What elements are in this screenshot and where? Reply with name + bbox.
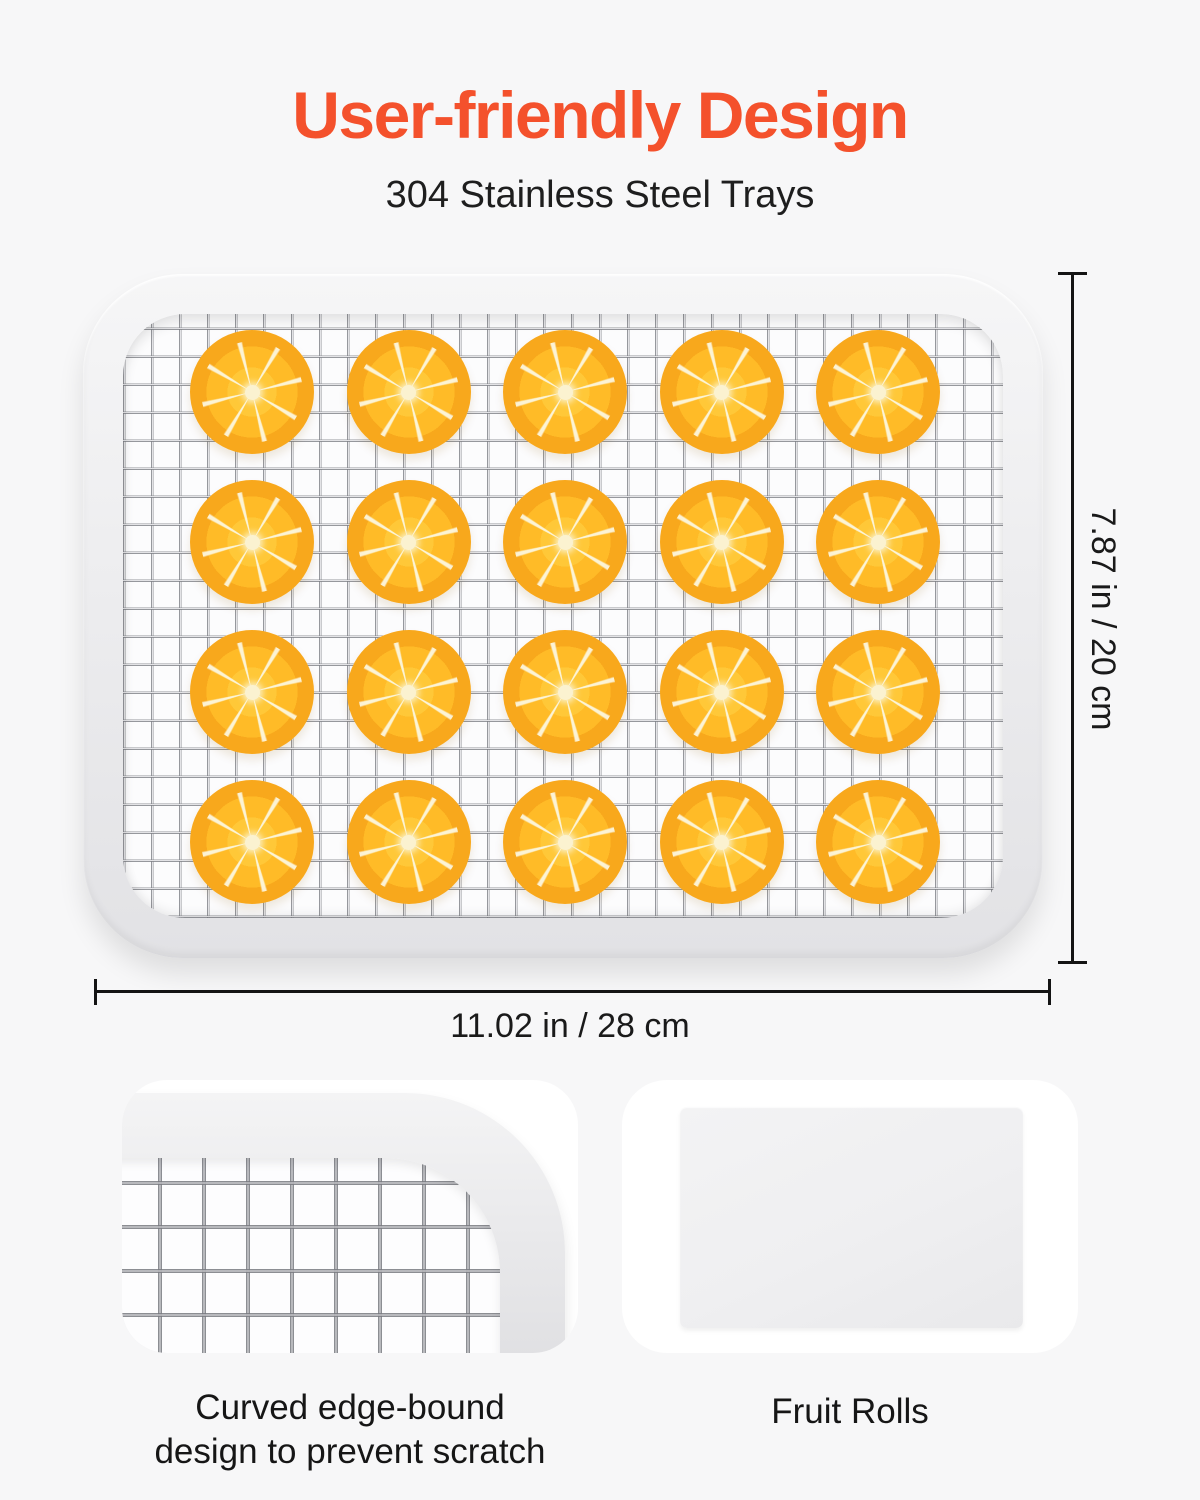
tray-corner-frame — [122, 1093, 565, 1353]
width-dimension-cap-left — [94, 979, 97, 1005]
orange-slice — [190, 480, 314, 604]
width-dimension-label: 11.02 in / 28 cm — [370, 1006, 770, 1046]
height-dimension-line — [1071, 273, 1074, 963]
orange-slice — [190, 630, 314, 754]
orange-slice — [503, 480, 627, 604]
width-dimension-cap-right — [1048, 979, 1051, 1005]
height-dimension-label: 7.87 in / 20 cm — [1083, 419, 1123, 819]
orange-slice — [190, 330, 314, 454]
height-dimension-cap-top — [1058, 272, 1087, 275]
orange-slice — [503, 330, 627, 454]
orange-slice — [816, 480, 940, 604]
feature-caption-curved-edge: Curved edge-bound design to prevent scra… — [122, 1386, 578, 1474]
feature-caption-fruit-rolls: Fruit Rolls — [622, 1390, 1078, 1434]
orange-slice — [503, 780, 627, 904]
orange-slice — [347, 630, 471, 754]
orange-slice — [816, 780, 940, 904]
feature-caption-line1: Curved edge-bound — [122, 1386, 578, 1430]
orange-slice — [660, 480, 784, 604]
tray-mesh — [123, 314, 1003, 918]
orange-slice — [347, 480, 471, 604]
orange-slice — [660, 780, 784, 904]
tray-image — [83, 274, 1043, 958]
page-subtitle: 304 Stainless Steel Trays — [0, 172, 1200, 218]
feature-card-curved-edge — [122, 1080, 578, 1353]
orange-slice — [503, 630, 627, 754]
orange-slice — [816, 330, 940, 454]
orange-slice — [347, 330, 471, 454]
height-dimension-cap-bottom — [1058, 961, 1087, 964]
page-title: User-friendly Design — [0, 82, 1200, 148]
feature-caption-line2: design to prevent scratch — [122, 1430, 578, 1474]
product-infographic: User-friendly Design 304 Stainless Steel… — [0, 0, 1200, 1500]
orange-slice — [190, 780, 314, 904]
fruit-roll-sheet — [680, 1107, 1023, 1328]
orange-slice — [660, 330, 784, 454]
orange-slice — [816, 630, 940, 754]
feature-card-fruit-rolls — [622, 1080, 1078, 1353]
orange-slice — [660, 630, 784, 754]
tray-corner-mesh — [122, 1158, 500, 1353]
orange-slice — [347, 780, 471, 904]
width-dimension-line — [94, 990, 1051, 993]
